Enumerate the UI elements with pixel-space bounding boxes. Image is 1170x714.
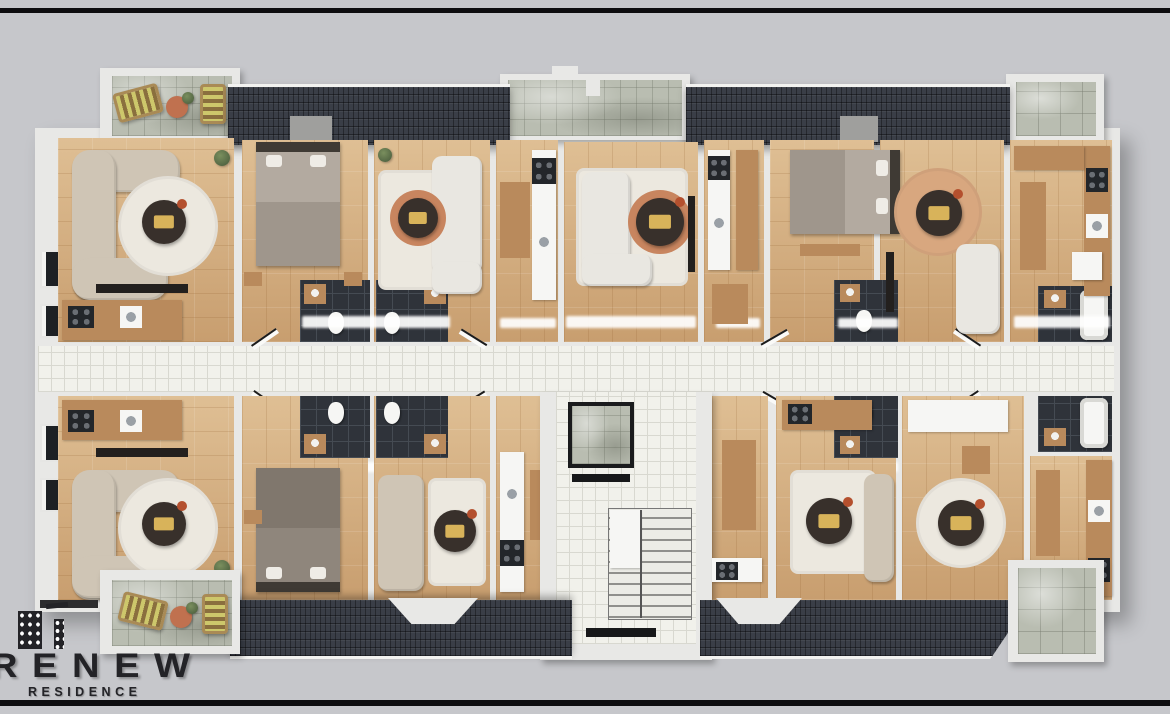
stair-landing bbox=[610, 510, 640, 568]
central-corridor bbox=[38, 346, 1114, 392]
tv-console bbox=[96, 284, 188, 293]
plant bbox=[378, 148, 392, 162]
pillow bbox=[876, 198, 888, 214]
entrance-doormat bbox=[586, 628, 656, 637]
plant bbox=[214, 150, 230, 166]
lit-wall bbox=[1014, 316, 1110, 328]
vanity bbox=[840, 284, 860, 302]
coffee-table bbox=[434, 510, 476, 552]
bed bbox=[790, 150, 900, 234]
nightstand bbox=[244, 510, 262, 524]
dining-table bbox=[962, 446, 990, 474]
bed bbox=[256, 468, 340, 592]
lit-wall bbox=[566, 316, 696, 328]
stove bbox=[500, 540, 524, 566]
stove bbox=[1086, 168, 1108, 192]
lounge-chair bbox=[200, 84, 226, 124]
sink bbox=[500, 482, 524, 506]
buildings-icon-roof bbox=[46, 602, 68, 609]
sofa-chaise bbox=[582, 254, 652, 286]
flower-bouquet bbox=[467, 509, 477, 519]
roof-gable-box bbox=[290, 116, 332, 142]
brand-name: RENEW bbox=[0, 647, 205, 686]
coffee-table bbox=[938, 500, 984, 546]
lit-wall bbox=[838, 318, 898, 328]
coffee-table bbox=[636, 198, 684, 246]
sofa bbox=[956, 244, 1000, 334]
roof-top-left bbox=[228, 84, 510, 145]
sink bbox=[1088, 500, 1110, 522]
coffee-table bbox=[142, 502, 186, 546]
roof-gable-box bbox=[840, 116, 878, 142]
sofa-chaise bbox=[432, 262, 482, 294]
sink bbox=[1086, 214, 1108, 238]
tv-console bbox=[886, 252, 894, 312]
gold-tray bbox=[950, 516, 971, 530]
bed bbox=[256, 142, 340, 266]
refrigerator bbox=[1072, 252, 1102, 280]
blanket bbox=[790, 150, 845, 234]
vanity bbox=[840, 436, 860, 454]
floor-plan-render: RENEW RESIDENCE bbox=[0, 0, 1170, 714]
terrace-pillar bbox=[586, 74, 600, 96]
gold-tray bbox=[649, 215, 671, 229]
pillow bbox=[310, 155, 326, 167]
coffee-table bbox=[916, 190, 962, 236]
balcony-top-right-floor bbox=[1016, 82, 1096, 136]
plant bbox=[182, 92, 194, 104]
elevator-doormat bbox=[572, 474, 630, 482]
pillow bbox=[310, 567, 326, 579]
coffee-table bbox=[806, 498, 852, 544]
sofa bbox=[378, 475, 424, 591]
stair-divider bbox=[640, 510, 642, 618]
brand-logo: RENEW RESIDENCE bbox=[0, 595, 280, 705]
nightstand bbox=[244, 272, 262, 286]
lit-wall bbox=[302, 316, 450, 328]
gold-tray bbox=[818, 514, 839, 528]
flower-bouquet bbox=[953, 189, 963, 199]
pillow bbox=[266, 155, 282, 167]
vanity bbox=[304, 284, 326, 304]
kitchen-counter bbox=[500, 452, 524, 592]
coffee-table bbox=[142, 200, 186, 244]
flower-bouquet bbox=[975, 499, 985, 509]
kitchen-counter bbox=[736, 150, 758, 270]
vanity bbox=[304, 434, 326, 454]
kitchen-counter bbox=[1014, 146, 1084, 170]
blanket bbox=[256, 468, 340, 528]
stove bbox=[68, 306, 94, 328]
stove bbox=[532, 158, 556, 184]
gold-tray bbox=[154, 517, 174, 530]
roof-dormer bbox=[552, 66, 578, 78]
headboard bbox=[256, 142, 340, 152]
kitchen-counter bbox=[908, 400, 1008, 432]
kitchen-island bbox=[1036, 470, 1060, 556]
vanity bbox=[1044, 428, 1066, 446]
nightstand bbox=[344, 272, 362, 286]
vanity bbox=[424, 434, 446, 454]
toilet bbox=[384, 402, 400, 424]
flower-bouquet bbox=[843, 497, 853, 507]
gold-tray bbox=[154, 215, 174, 228]
tv-console bbox=[688, 196, 695, 272]
toilet bbox=[328, 402, 344, 424]
brand-tagline: RESIDENCE bbox=[28, 685, 141, 699]
vanity bbox=[1044, 290, 1066, 308]
dining-table bbox=[722, 440, 756, 530]
sink bbox=[708, 212, 730, 234]
kitchen-island bbox=[1020, 182, 1046, 270]
gold-tray bbox=[928, 206, 949, 220]
coffee-table bbox=[398, 198, 438, 238]
pillow bbox=[876, 160, 888, 176]
flower-bouquet bbox=[675, 197, 685, 207]
gold-tray bbox=[409, 212, 427, 224]
blanket bbox=[256, 202, 340, 266]
stove bbox=[68, 410, 94, 432]
stove bbox=[716, 562, 738, 580]
bench bbox=[800, 244, 860, 256]
pillow bbox=[266, 567, 282, 579]
sink bbox=[532, 230, 556, 254]
headboard bbox=[256, 582, 340, 592]
sink bbox=[120, 410, 142, 432]
tv-console bbox=[96, 448, 188, 457]
stove bbox=[788, 404, 812, 424]
balcony-bottom-right-floor bbox=[1018, 568, 1096, 654]
flower-bouquet bbox=[177, 501, 187, 511]
dining-table bbox=[712, 284, 748, 324]
bathtub bbox=[1080, 290, 1108, 340]
stove bbox=[708, 156, 730, 180]
lit-wall bbox=[500, 318, 556, 328]
dining-table bbox=[500, 182, 530, 258]
sofa bbox=[864, 474, 894, 582]
flower-bouquet bbox=[177, 199, 187, 209]
gold-tray bbox=[445, 525, 464, 538]
elevator bbox=[568, 402, 634, 468]
top-rule-line bbox=[0, 8, 1170, 13]
bathtub bbox=[1080, 398, 1108, 448]
sink bbox=[120, 306, 142, 328]
